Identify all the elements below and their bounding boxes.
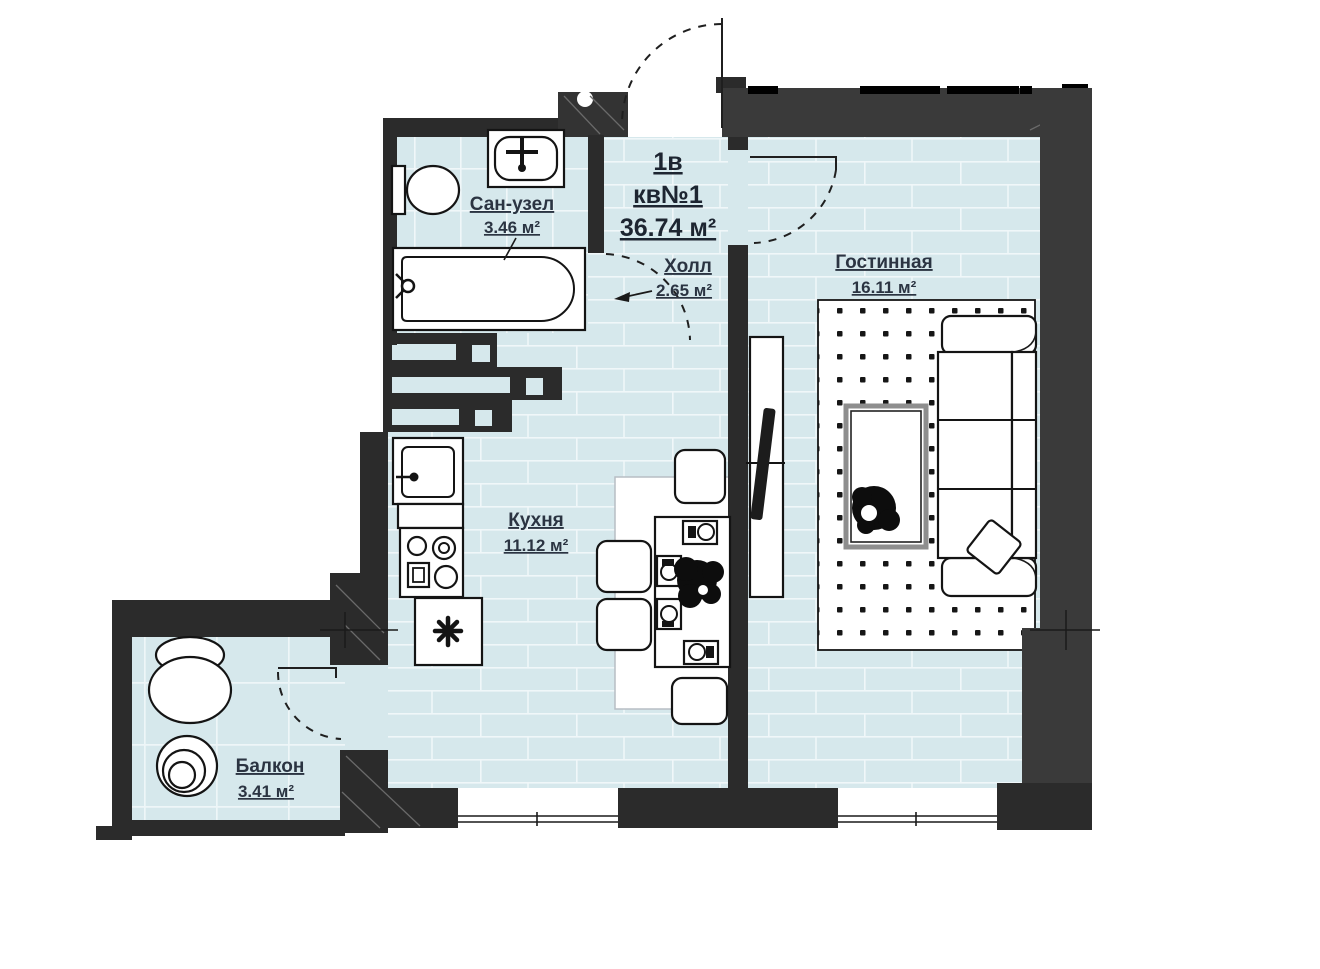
stove — [400, 528, 463, 597]
svg-text:Балкон: Балкон — [236, 756, 305, 777]
doorway-balcony — [345, 665, 388, 750]
snowflake-icon — [435, 618, 461, 645]
svg-text:16.11 м²: 16.11 м² — [852, 278, 917, 297]
svg-text:Гостинная: Гостинная — [835, 252, 932, 273]
kitchen-sink — [393, 438, 463, 504]
entrance-door — [622, 18, 722, 128]
toilet — [392, 166, 459, 214]
svg-text:3.46 м²: 3.46 м² — [484, 218, 540, 237]
plate — [657, 599, 681, 629]
wall-living-bottom-corner — [997, 783, 1092, 830]
svg-text:11.12 м²: 11.12 м² — [504, 536, 569, 555]
window-kitchen — [458, 788, 618, 828]
table-plant — [674, 557, 724, 608]
armchair — [149, 637, 231, 723]
chair — [597, 599, 651, 650]
wall-notch — [577, 91, 593, 107]
chair — [672, 678, 727, 724]
svg-text:2.65 м²: 2.65 м² — [656, 281, 712, 300]
svg-text:Холл: Холл — [664, 256, 712, 277]
svg-text:Кухня: Кухня — [508, 510, 564, 531]
doorway-living — [728, 150, 748, 245]
tv-stand — [746, 337, 785, 597]
flower-pot — [157, 736, 217, 796]
sofa — [938, 316, 1036, 596]
wall-kitchen-left — [360, 432, 388, 573]
title-line2: кв№1 — [633, 181, 703, 209]
door-swing-arc — [622, 24, 722, 124]
refrigerator — [415, 598, 482, 665]
window-living — [838, 788, 997, 828]
chair — [675, 450, 725, 503]
chair — [597, 541, 651, 592]
svg-text:Сан-узел: Сан-узел — [470, 194, 554, 215]
wall-right-pilaster — [1022, 628, 1092, 795]
plate — [684, 641, 718, 664]
title-line3: 36.74 м² — [620, 214, 716, 242]
wall-balcony-top — [112, 600, 345, 637]
wall-balcony-railing — [112, 820, 345, 836]
wall-kitchen-bottom-right — [618, 788, 838, 828]
wall-bathroom-right — [588, 135, 604, 253]
kitchen-counter — [398, 504, 463, 528]
wall-kitchen-bottom-left — [377, 788, 458, 828]
wall-living-top — [722, 88, 1092, 137]
svg-text:3.41 м²: 3.41 м² — [238, 782, 294, 801]
bathtub — [393, 248, 585, 330]
plate — [683, 521, 717, 544]
title-line1: 1в — [653, 148, 682, 176]
wash-basin — [488, 130, 564, 187]
floor-plan: 1в кв№1 36.74 м² Сан-узел 3.46 м² Холл 2… — [0, 0, 1320, 969]
